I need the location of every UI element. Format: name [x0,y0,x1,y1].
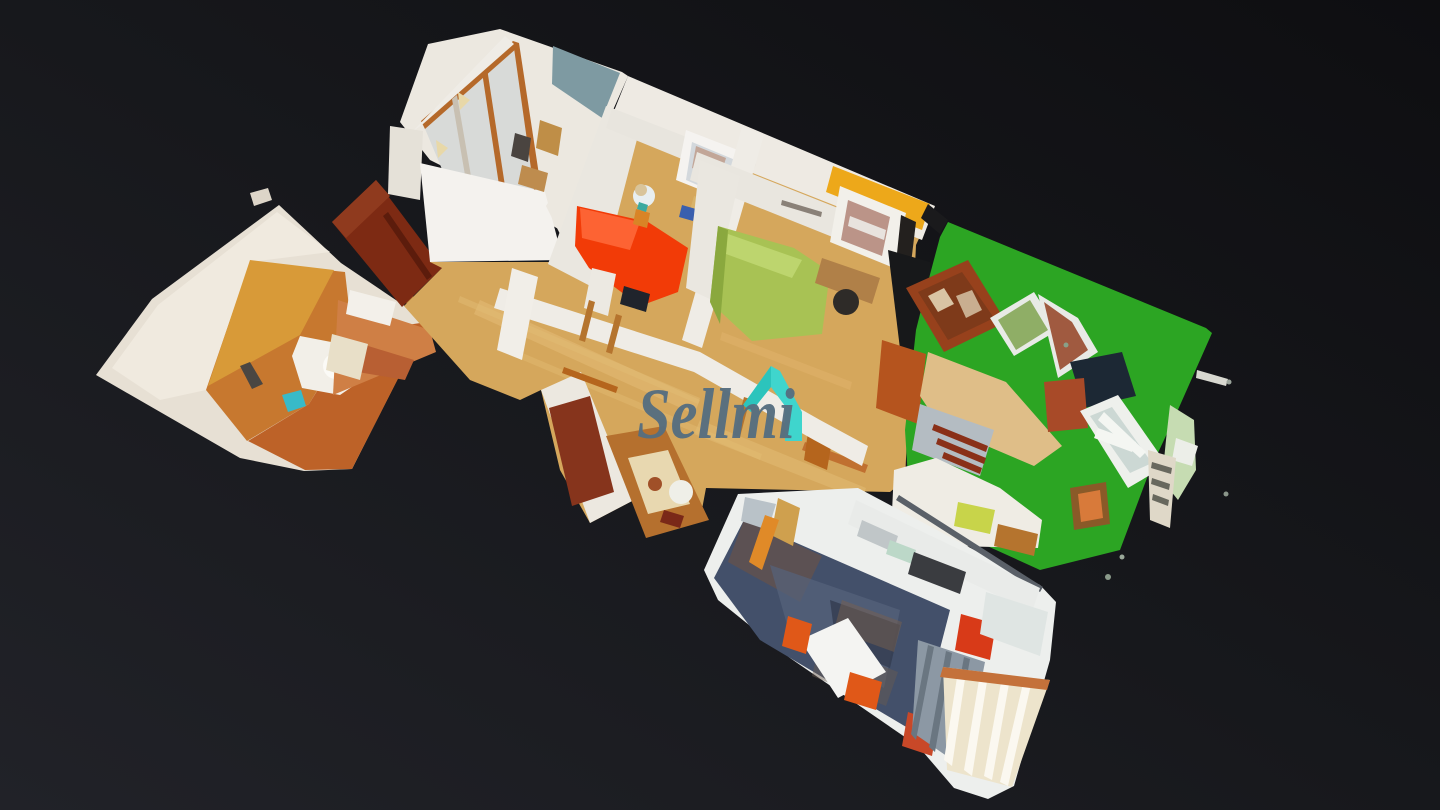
svg-text:Sellmi: Sellmi [637,375,795,454]
